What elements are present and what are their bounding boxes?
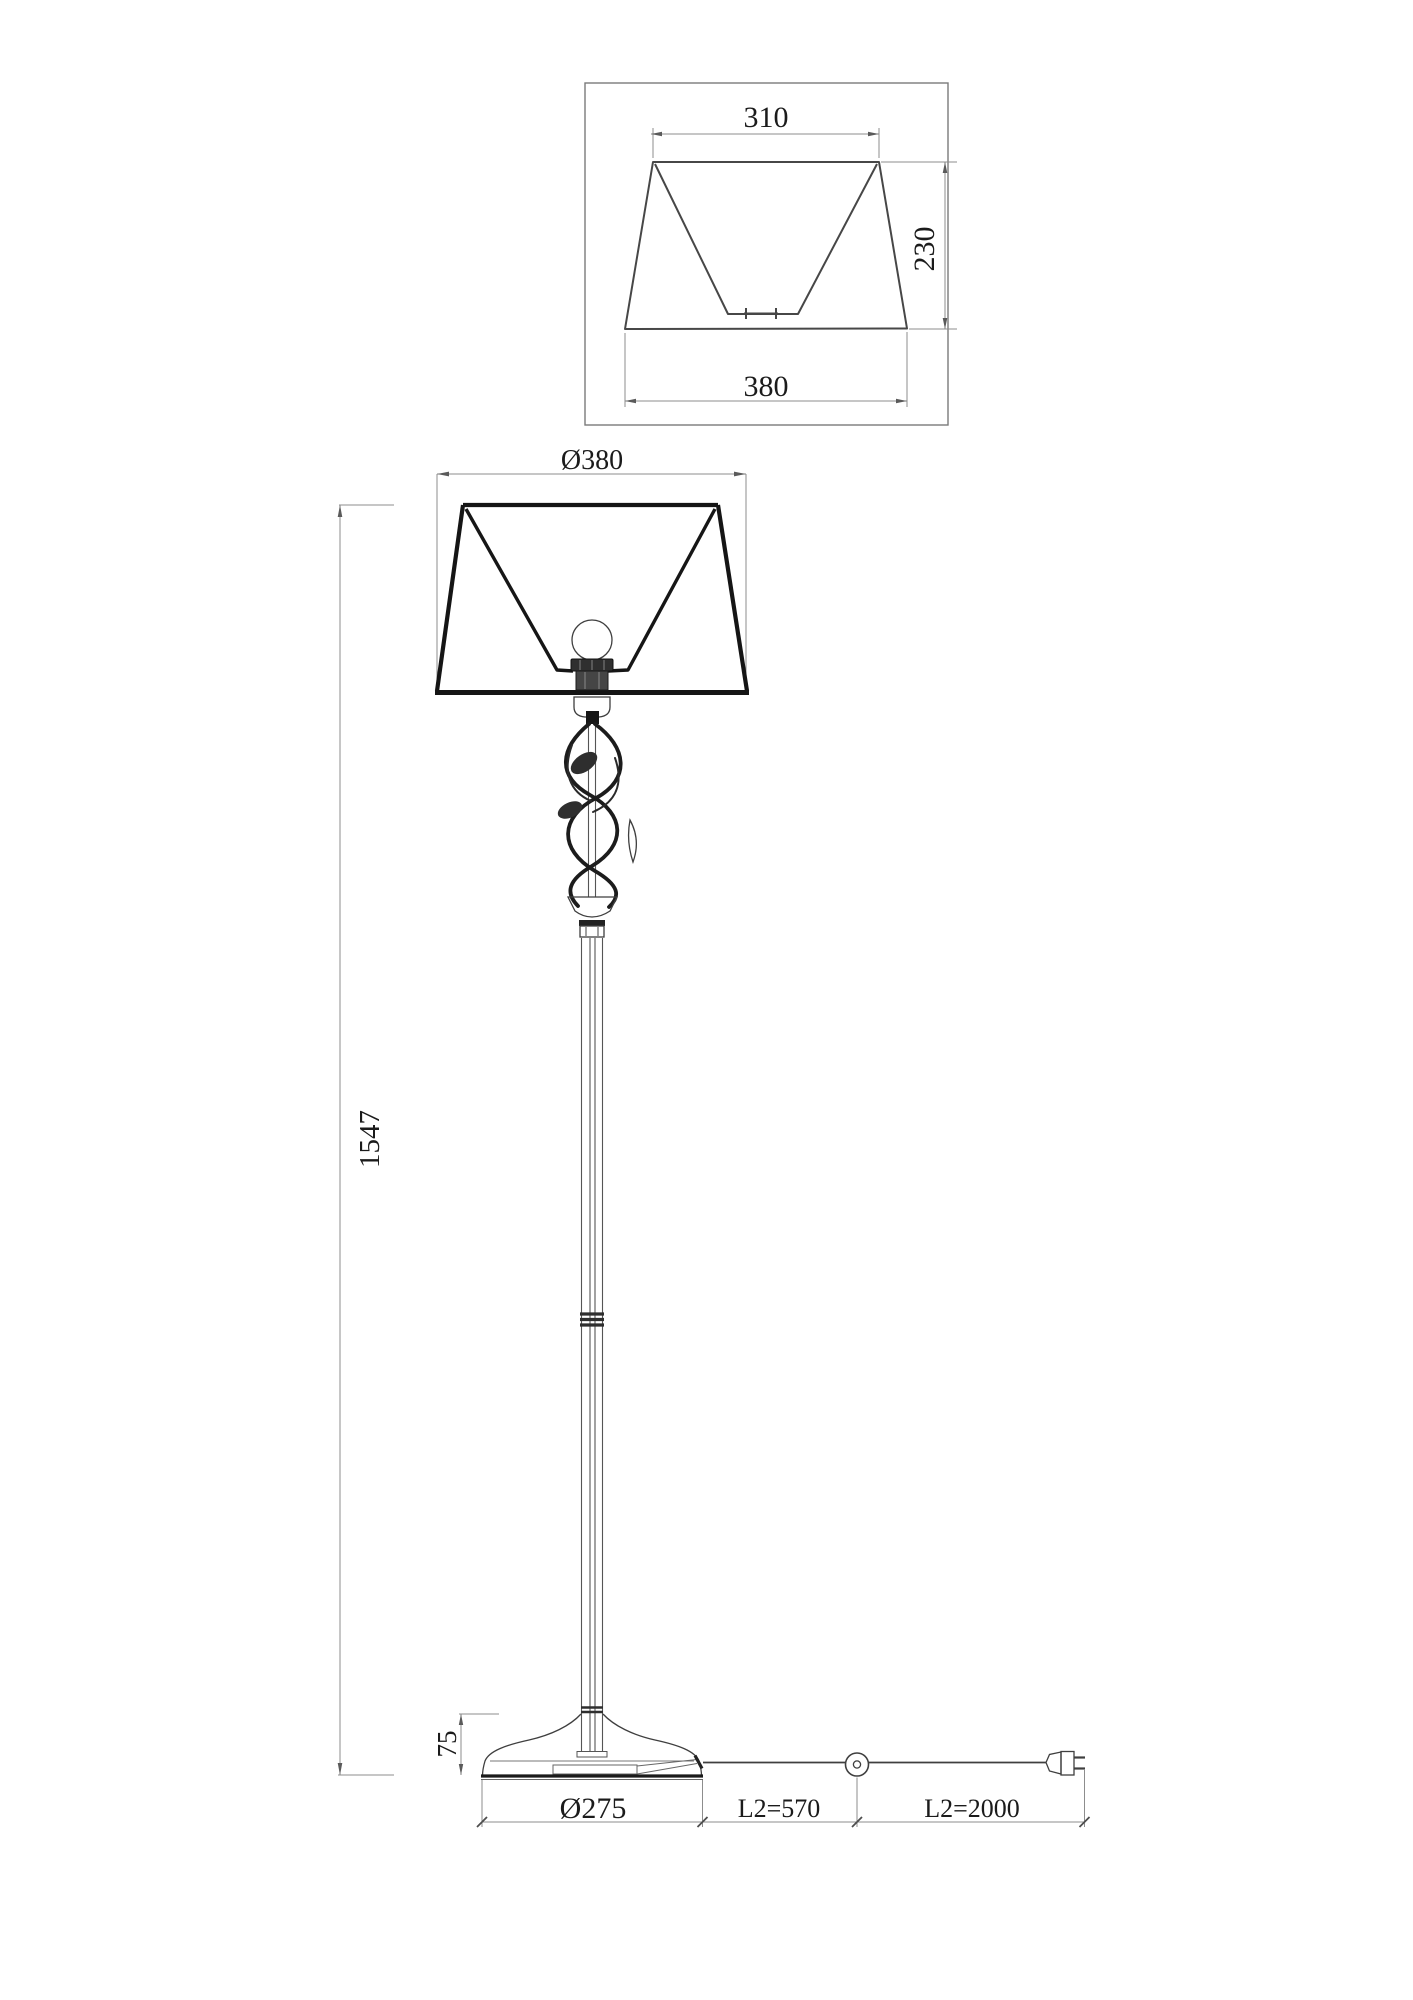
- dimension-label-380: 380: [744, 370, 789, 403]
- leaf-ornament: [555, 798, 585, 823]
- finial-block: [586, 711, 599, 724]
- dimension-label-310: 310: [744, 101, 789, 134]
- pole-ring-lower: [581, 1708, 603, 1713]
- dimension-label-base-height: 75: [432, 1731, 462, 1758]
- pole-ring: [580, 1314, 604, 1325]
- crystal-drop: [629, 820, 637, 862]
- inline-switch: [846, 1753, 869, 1776]
- power-plug: [1046, 1752, 1085, 1776]
- dimension-base-height: 75: [432, 1714, 499, 1775]
- base-weight-plate: [553, 1765, 637, 1774]
- dimension-label-total-height: 1547: [354, 1110, 386, 1168]
- dimension-top-width: 310: [651, 101, 879, 158]
- dimension-bottom-width: 380: [625, 332, 907, 407]
- technical-drawing-sheet: 310 230 380: [0, 0, 1413, 2000]
- lamp-base: [481, 1714, 703, 1780]
- dimension-label-base-diameter: Ø275: [560, 1792, 627, 1825]
- dimension-label-shade-diameter: Ø380: [561, 445, 623, 476]
- floor-lamp-technical-drawing: 310 230 380: [0, 0, 1413, 2000]
- lamp-elevation-view: Ø380 1547: [338, 445, 1090, 1827]
- shade-detail-outline: [625, 162, 907, 329]
- lamp-pole: [580, 938, 604, 1752]
- dimension-chain-bottom: Ø275 L2=570 L2=2000: [477, 1770, 1090, 1827]
- shade-detail-view: 310 230 380: [585, 83, 957, 425]
- dimension-label-cord-to-switch: L2=570: [738, 1794, 821, 1823]
- dimension-shade-diameter: Ø380: [437, 445, 746, 690]
- light-bulb: [572, 620, 612, 663]
- dimension-total-height: 1547: [338, 505, 394, 1775]
- dimension-label-cord-to-plug: L2=2000: [924, 1794, 1020, 1823]
- decorative-scroll-section: [555, 697, 636, 937]
- shade-holder-clamp: [744, 308, 778, 319]
- cord-grommet: [695, 1756, 702, 1769]
- dimension-label-230: 230: [908, 227, 941, 272]
- pole-base-nut: [577, 1752, 607, 1758]
- lamp-socket: [571, 659, 613, 690]
